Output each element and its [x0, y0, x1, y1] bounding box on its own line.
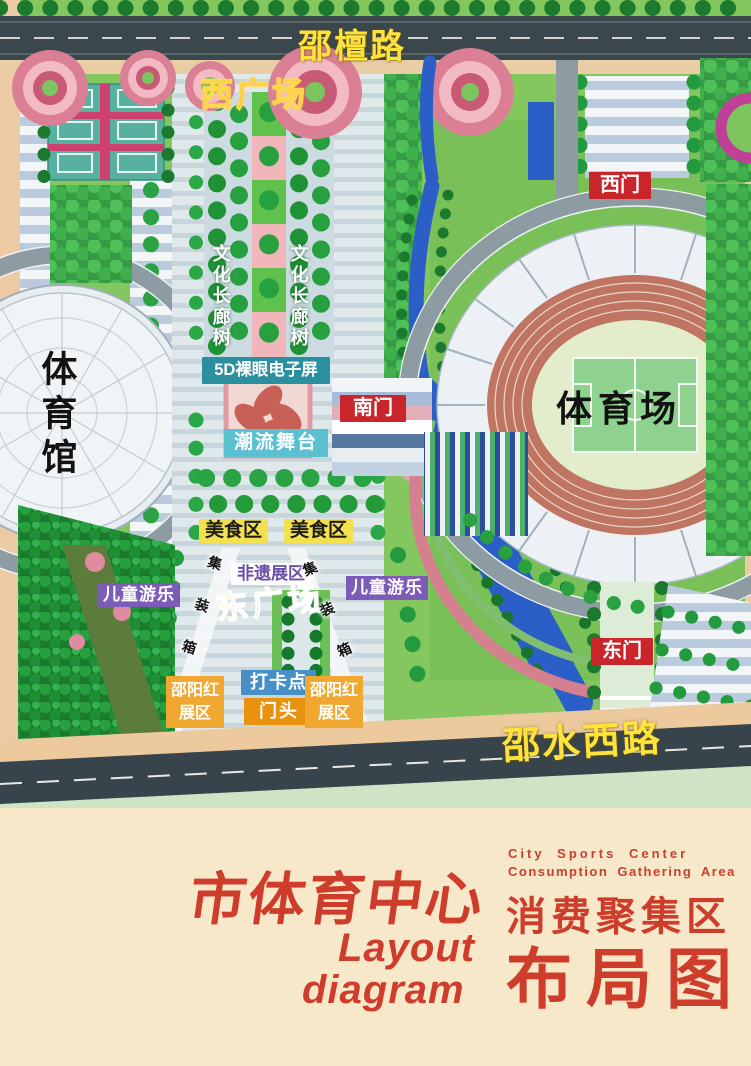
gymnasium-label: 体育馆: [36, 350, 77, 482]
east-gate-badge: 东门: [591, 638, 653, 665]
kids-play-badge-left: 儿童游乐: [98, 583, 180, 607]
corridor-middle-strip: [252, 92, 286, 358]
food-zone-badge-left: 美食区: [199, 519, 268, 543]
sports-center-layout-poster: 邵檀路 西广场 西门 文化长廊树 文化长廊树 5D裸眼电子屏 南门 体育场 体育…: [0, 0, 751, 1066]
gate-head-badge: 门头: [244, 698, 314, 725]
5d-screen-badge: 5D裸眼电子屏: [202, 357, 330, 384]
title-english-line2: diagram: [302, 968, 465, 1013]
west-gate-badge: 西门: [589, 172, 651, 199]
shaoyang-red-zone-badge-right: 邵阳红展区: [305, 676, 363, 728]
west-plaza-label: 西广场: [200, 76, 308, 114]
stadium-label: 体育场: [556, 388, 682, 429]
title-english-line1: Layout: [338, 926, 475, 971]
culture-corridor-label-right: 文化长廊树: [288, 244, 309, 349]
subtitle-english-line1: City Sports Center: [508, 846, 688, 861]
shaoyang-red-zone-badge-left: 邵阳红展区: [166, 676, 224, 728]
title-block: 市体育中心 Layout diagram City Sports Center …: [0, 808, 751, 1066]
south-gate-badge: 南门: [340, 395, 406, 422]
trend-stage-badge: 潮流舞台: [224, 429, 328, 457]
food-zone-badge-right: 美食区: [284, 519, 353, 543]
site-plan-map: 邵檀路 西广场 西门 文化长廊树 文化长廊树 5D裸眼电子屏 南门 体育场 体育…: [0, 0, 751, 808]
north-road-label: 邵檀路: [298, 28, 406, 67]
south-road-label: 邵水西路: [501, 718, 663, 770]
kids-play-badge-right: 儿童游乐: [346, 576, 428, 600]
title-chinese-main: 市体育中心: [184, 854, 491, 936]
culture-corridor-label-left: 文化长廊树: [210, 244, 231, 349]
subtitle-english-line2: Consumption Gathering Area: [508, 864, 736, 879]
subtitle-chinese-2: 布局图: [506, 926, 746, 1022]
